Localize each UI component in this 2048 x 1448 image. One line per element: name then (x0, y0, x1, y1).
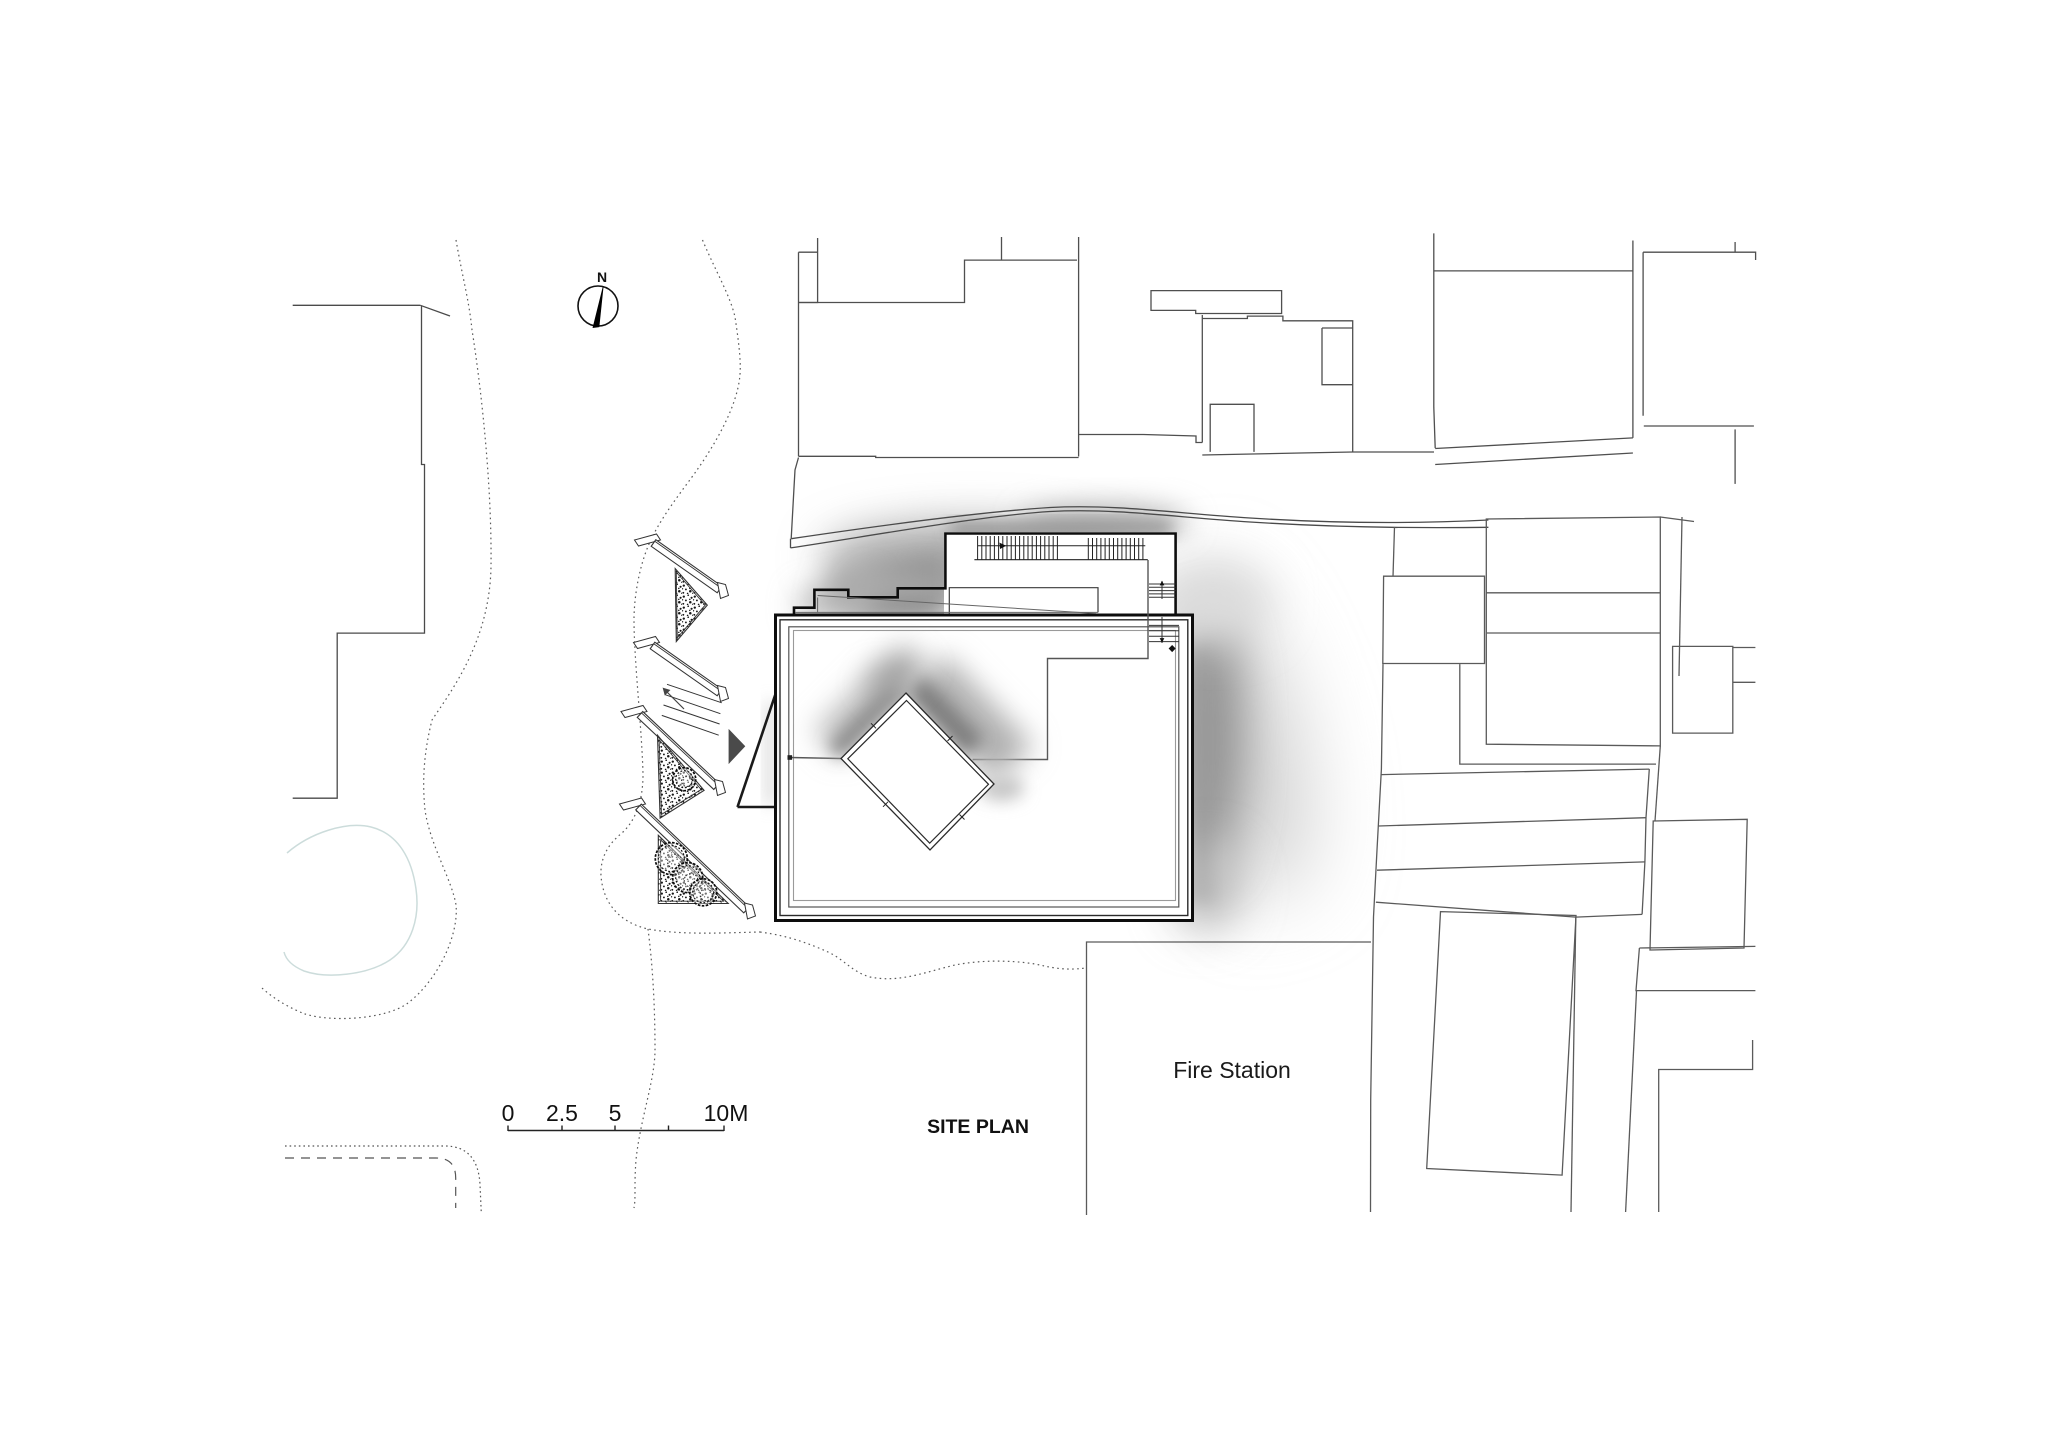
svg-text:2.5: 2.5 (546, 1100, 578, 1126)
svg-text:5: 5 (609, 1100, 622, 1126)
svg-text:0: 0 (502, 1100, 515, 1126)
svg-text:N: N (597, 269, 607, 285)
svg-text:10M: 10M (704, 1100, 749, 1126)
svg-text:SITE PLAN: SITE PLAN (927, 1116, 1029, 1138)
svg-text:Fire Station: Fire Station (1173, 1057, 1291, 1083)
